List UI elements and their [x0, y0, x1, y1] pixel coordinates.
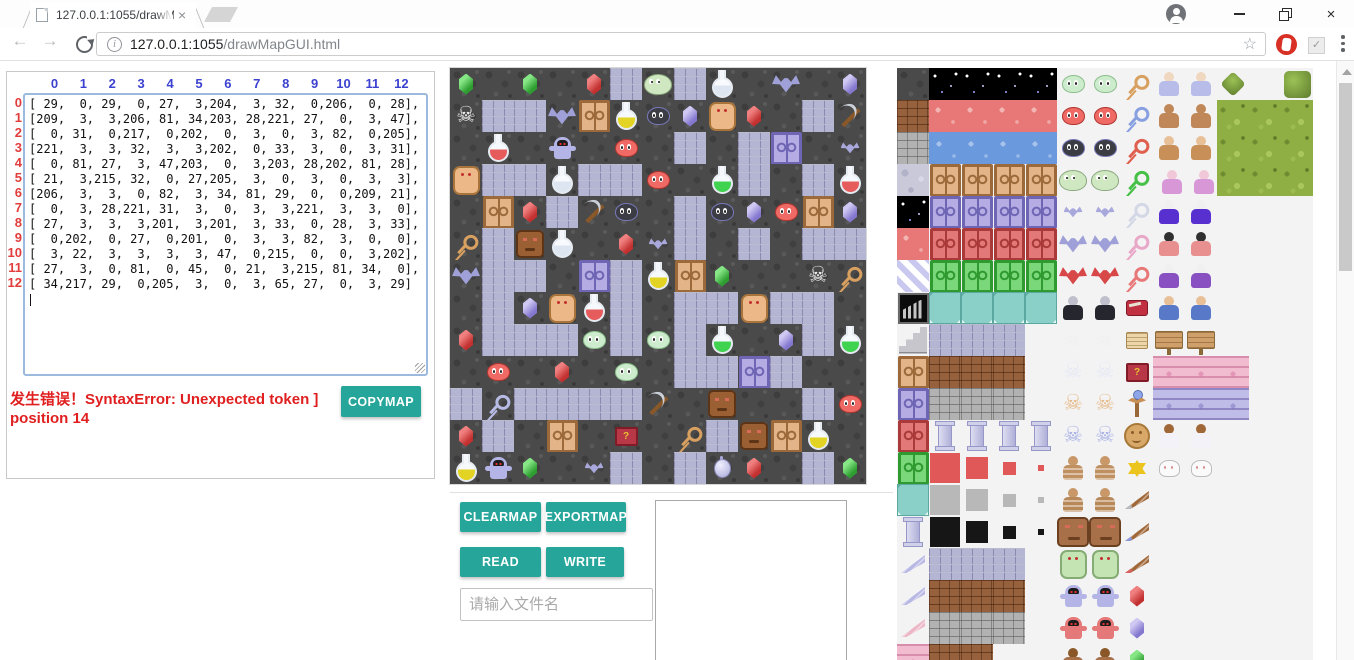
map-tile-dark-cobblestone[interactable]: [770, 100, 802, 132]
map-tile-silver-key[interactable]: [482, 388, 514, 420]
palette-tile-purple-door[interactable]: [993, 196, 1025, 228]
palette-tile-green-door[interactable]: [993, 260, 1025, 292]
textarea-resize-handle[interactable]: [415, 363, 425, 373]
close-window-button[interactable]: ×: [1308, 0, 1354, 28]
map-tile-tan-door[interactable]: [482, 196, 514, 228]
palette-tile-empty[interactable]: [1217, 260, 1249, 292]
palette-tile-empty[interactable]: [1281, 516, 1313, 548]
map-tile-small-bat[interactable]: [834, 132, 866, 164]
clearmap-button[interactable]: CLEARMAP: [460, 502, 541, 532]
map-tile-dark-cobblestone[interactable]: [834, 420, 866, 452]
map-tile-lavender-brick[interactable]: [802, 100, 834, 132]
palette-tile-empty[interactable]: [1153, 548, 1185, 580]
palette-tile-tree-foliage[interactable]: [1281, 132, 1313, 164]
palette-tile-red-gem[interactable]: [1121, 580, 1153, 612]
palette-tile-empty[interactable]: [1281, 580, 1313, 612]
palette-tile-green-golem[interactable]: [1089, 548, 1121, 580]
palette-tile-black-slime[interactable]: [1057, 132, 1089, 164]
map-tile-purple-door[interactable]: [738, 356, 770, 388]
map-tile-lavender-brick[interactable]: [834, 228, 866, 260]
palette-tile-pink-wall[interactable]: [1185, 356, 1217, 388]
map-tile-red-gem[interactable]: [450, 324, 482, 356]
palette-tile-priest[interactable]: [1185, 260, 1217, 292]
map-tile-dark-cobblestone[interactable]: [450, 196, 482, 228]
map-tile-dark-cobblestone[interactable]: [738, 324, 770, 356]
palette-tile-grey-brick[interactable]: [961, 612, 993, 644]
palette-tile-empty[interactable]: [1281, 548, 1313, 580]
palette-tile-empty[interactable]: [1281, 452, 1313, 484]
map-tile-dark-cobblestone[interactable]: [738, 260, 770, 292]
map-tile-dark-cobblestone[interactable]: [770, 388, 802, 420]
palette-tile-empty[interactable]: [1217, 644, 1249, 660]
map-tile-green-gem[interactable]: [834, 452, 866, 484]
palette-tile-tree-foliage[interactable]: [1249, 100, 1281, 132]
palette-tile-teal-lattice[interactable]: [929, 292, 961, 324]
map-tile-lavender-brick[interactable]: [610, 452, 642, 484]
palette-tile-salmon-ground[interactable]: [1025, 100, 1057, 132]
map-tile-dark-cobblestone[interactable]: [514, 356, 546, 388]
map-tile-dark-cobblestone[interactable]: [450, 356, 482, 388]
palette-tile-old-man[interactable]: [1153, 68, 1185, 100]
map-tile-lavender-brick[interactable]: [482, 260, 514, 292]
map-tile-lavender-brick[interactable]: [674, 292, 706, 324]
map-tile-lavender-brick[interactable]: [802, 228, 834, 260]
palette-tile-empty[interactable]: [1249, 68, 1281, 100]
map-tile-lavender-brick[interactable]: [546, 324, 578, 356]
palette-tile-pink-ornate-key[interactable]: [1121, 228, 1153, 260]
profile-avatar-icon[interactable]: [1166, 4, 1186, 24]
palette-tile-black-square-8[interactable]: [1025, 516, 1057, 548]
map-tile-tan-door[interactable]: [674, 260, 706, 292]
map-tile-dark-cobblestone[interactable]: [482, 68, 514, 100]
map-tile-red-gem[interactable]: [578, 68, 610, 100]
palette-tile-dark-cobblestone[interactable]: [897, 68, 929, 100]
palette-tile-empty[interactable]: [1249, 644, 1281, 660]
palette-tile-empty[interactable]: [1185, 644, 1217, 660]
palette-tile-water[interactable]: [993, 132, 1025, 164]
palette-tile-tree-foliage[interactable]: [1217, 132, 1249, 164]
palette-tile-pink-wall[interactable]: [1153, 356, 1185, 388]
map-tile-yellow-potion[interactable]: [610, 100, 642, 132]
palette-tile-vampire[interactable]: [1089, 292, 1121, 324]
palette-tile-empty[interactable]: [1025, 612, 1057, 644]
palette-tile-white-puff[interactable]: [1185, 452, 1217, 484]
map-tile-lavender-brick[interactable]: [482, 324, 514, 356]
palette-tile-tan-door[interactable]: [929, 164, 961, 196]
palette-tile-empty[interactable]: [1217, 516, 1249, 548]
palette-tile-empty[interactable]: [1217, 612, 1249, 644]
map-tile-big-bat[interactable]: [546, 100, 578, 132]
map-tile-lavender-brick[interactable]: [546, 196, 578, 228]
palette-tile-red-bat[interactable]: [1057, 260, 1089, 292]
palette-tile-teal-lattice[interactable]: [897, 484, 929, 516]
palette-tile-red-door[interactable]: [961, 228, 993, 260]
palette-tile-pillar[interactable]: [929, 420, 961, 452]
palette-tile-stairs-icon[interactable]: [897, 292, 929, 324]
palette-tile-brown-brick[interactable]: [929, 644, 961, 660]
map-tile-golem[interactable]: [738, 292, 770, 324]
map-tile-dark-cobblestone[interactable]: [642, 452, 674, 484]
palette-tile-spell-book[interactable]: [1121, 356, 1153, 388]
palette-tile-empty[interactable]: [1281, 228, 1313, 260]
palette-tile-salmon-ground[interactable]: [929, 100, 961, 132]
map-tile-skeleton[interactable]: [802, 260, 834, 292]
palette-tile-large-stone-face[interactable]: [1089, 516, 1121, 548]
palette-tile-empty[interactable]: [1281, 196, 1313, 228]
palette-tile-wooden-sign[interactable]: [1185, 324, 1217, 356]
palette-tile-red-ghost[interactable]: [1057, 612, 1089, 644]
palette-tile-lavender-brick[interactable]: [961, 324, 993, 356]
minimize-button[interactable]: [1216, 0, 1262, 28]
palette-tile-fairy[interactable]: [1153, 164, 1185, 196]
map-tile-dark-cobblestone[interactable]: [578, 356, 610, 388]
map-tile-lavender-brick[interactable]: [482, 228, 514, 260]
palette-tile-hero-boy[interactable]: [1185, 292, 1217, 324]
map-tile-yellow-potion[interactable]: [642, 260, 674, 292]
map-tile-tan-door[interactable]: [546, 420, 578, 452]
scrollbar-thumb[interactable]: [1339, 83, 1352, 271]
map-tile-purple-door[interactable]: [578, 260, 610, 292]
palette-tile-red-ghost[interactable]: [1089, 612, 1121, 644]
forward-button[interactable]: →: [38, 31, 62, 51]
palette-tile-dwarf-face[interactable]: [1185, 100, 1217, 132]
palette-tile-empty[interactable]: [1249, 452, 1281, 484]
palette-tile-salmon-ground[interactable]: [993, 100, 1025, 132]
palette-tile-empty[interactable]: [1217, 420, 1249, 452]
map-tile-dark-cobblestone[interactable]: [674, 388, 706, 420]
map-tile-black-slime[interactable]: [642, 100, 674, 132]
palette-tile-purple-door[interactable]: [961, 196, 993, 228]
map-tile-spell-book[interactable]: [610, 420, 642, 452]
palette-tile-mummy-with-shield[interactable]: [1089, 484, 1121, 516]
map-tile-lavender-brick[interactable]: [610, 324, 642, 356]
palette-tile-tree-foliage[interactable]: [1281, 100, 1313, 132]
palette-tile-blue-key[interactable]: [1121, 100, 1153, 132]
map-tile-dark-cobblestone[interactable]: [642, 356, 674, 388]
palette-tile-red-square-16[interactable]: [993, 452, 1025, 484]
palette-tile-brown-brick[interactable]: [993, 580, 1025, 612]
map-tile-tan-door[interactable]: [770, 420, 802, 452]
palette-tile-empty[interactable]: [1153, 484, 1185, 516]
map-tile-green-gem[interactable]: [514, 68, 546, 100]
palette-tile-red-door[interactable]: [897, 420, 929, 452]
map-tile-lavender-brick[interactable]: [802, 324, 834, 356]
map-tile-small-bat[interactable]: [642, 228, 674, 260]
map-tile-dark-cobblestone[interactable]: [578, 420, 610, 452]
palette-tile-red-square-32[interactable]: [929, 452, 961, 484]
palette-tile-black-square-32[interactable]: [929, 516, 961, 548]
palette-tile-grey-brick[interactable]: [929, 612, 961, 644]
map-tile-pale-slime[interactable]: [642, 324, 674, 356]
map-tile-red-potion[interactable]: [834, 164, 866, 196]
map-tile-dark-cobblestone[interactable]: [770, 164, 802, 196]
palette-tile-grey-brick[interactable]: [897, 132, 929, 164]
map-tile-black-slime[interactable]: [706, 196, 738, 228]
map-tile-lavender-brick[interactable]: [802, 292, 834, 324]
palette-tile-red-ornate-key[interactable]: [1121, 260, 1153, 292]
palette-tile-pillar[interactable]: [897, 516, 929, 548]
palette-tile-tree-foliage[interactable]: [1217, 100, 1249, 132]
map-tile-dark-cobblestone[interactable]: [738, 388, 770, 420]
palette-tile-empty[interactable]: [1249, 516, 1281, 548]
map-tile-red-slime[interactable]: [642, 164, 674, 196]
palette-tile-tan-skeleton[interactable]: [1089, 388, 1121, 420]
map-tile-red-gem[interactable]: [738, 452, 770, 484]
palette-tile-empty[interactable]: [1249, 548, 1281, 580]
palette-tile-red-square-8[interactable]: [1025, 452, 1057, 484]
palette-tile-red-wing[interactable]: [1121, 548, 1153, 580]
palette-tile-purple-wizard[interactable]: [1185, 196, 1217, 228]
map-tile-clear-potion[interactable]: [546, 228, 578, 260]
palette-tile-tan-door[interactable]: [993, 164, 1025, 196]
palette-tile-empty[interactable]: [1025, 388, 1057, 420]
palette-tile-armored-skeleton[interactable]: [1089, 420, 1121, 452]
palette-tile-lavender-brick[interactable]: [929, 324, 961, 356]
palette-tile-empty[interactable]: [1153, 644, 1185, 660]
palette-tile-mummy[interactable]: [1089, 452, 1121, 484]
palette-tile-empty[interactable]: [1185, 484, 1217, 516]
palette-tile-empty[interactable]: [1025, 644, 1057, 660]
palette-tile-priest[interactable]: [1153, 260, 1185, 292]
map-tile-lavender-brick[interactable]: [674, 356, 706, 388]
palette-tile-water[interactable]: [929, 132, 961, 164]
map-tile-dark-cobblestone[interactable]: [802, 356, 834, 388]
palette-tile-empty[interactable]: [1249, 580, 1281, 612]
palette-tile-old-man[interactable]: [1185, 68, 1217, 100]
map-tile-dark-cobblestone[interactable]: [546, 452, 578, 484]
map-tile-red-potion[interactable]: [482, 132, 514, 164]
map-tile-lavender-brick[interactable]: [674, 324, 706, 356]
palette-tile-empty[interactable]: [1249, 612, 1281, 644]
palette-tile-empty[interactable]: [1153, 612, 1185, 644]
palette-tile-grey-brick[interactable]: [929, 388, 961, 420]
palette-tile-brown-brick[interactable]: [929, 580, 961, 612]
palette-tile-grey-square-32[interactable]: [929, 484, 961, 516]
map-tile-lavender-brick[interactable]: [482, 420, 514, 452]
palette-tile-diagonal-stripes[interactable]: [897, 260, 929, 292]
palette-tile-green-door[interactable]: [961, 260, 993, 292]
map-tile-lavender-brick[interactable]: [546, 388, 578, 420]
palette-tile-empty[interactable]: [1249, 196, 1281, 228]
map-tile-gold-key[interactable]: [674, 420, 706, 452]
map-tile-lavender-brick[interactable]: [514, 260, 546, 292]
palette-tile-black-slime[interactable]: [1089, 132, 1121, 164]
map-tile-purple-gem[interactable]: [738, 196, 770, 228]
palette-tile-tree-foliage[interactable]: [1217, 164, 1249, 196]
palette-tile-pink-wall[interactable]: [1217, 356, 1249, 388]
palette-tile-skeleton[interactable]: [1057, 324, 1089, 356]
map-tile-lavender-brick[interactable]: [674, 68, 706, 100]
map-tile-dark-cobblestone[interactable]: [514, 420, 546, 452]
palette-tile-black-square-24[interactable]: [961, 516, 993, 548]
palette-tile-skeleton[interactable]: [1089, 324, 1121, 356]
map-tile-lavender-brick[interactable]: [610, 164, 642, 196]
palette-tile-red-door[interactable]: [993, 228, 1025, 260]
palette-tile-empty[interactable]: [1281, 612, 1313, 644]
map-tile-dark-cobblestone[interactable]: [514, 132, 546, 164]
palette-tile-empty[interactable]: [1281, 356, 1313, 388]
map-tile-lavender-brick[interactable]: [514, 164, 546, 196]
palette-tile-green-door[interactable]: [929, 260, 961, 292]
palette-tile-red-slime[interactable]: [1057, 100, 1089, 132]
map-tile-red-gem[interactable]: [514, 196, 546, 228]
browser-tab[interactable]: 127.0.0.1:1055/drawMa ×: [30, 2, 196, 28]
palette-tile-tan-scroll[interactable]: [1121, 324, 1153, 356]
map-tile-purple-gem[interactable]: [514, 292, 546, 324]
map-tile-red-potion[interactable]: [578, 292, 610, 324]
palette-tile-green-door[interactable]: [1025, 260, 1057, 292]
palette-tile-brown-brick[interactable]: [929, 356, 961, 388]
palette-tile-empty[interactable]: [1281, 420, 1313, 452]
palette-tile-brawler[interactable]: [1153, 132, 1185, 164]
palette-tile-pillar[interactable]: [993, 420, 1025, 452]
palette-tile-tan-door[interactable]: [897, 356, 929, 388]
palette-tile-red-door[interactable]: [929, 228, 961, 260]
palette-tile-empty[interactable]: [1185, 548, 1217, 580]
map-tile-lavender-brick[interactable]: [610, 388, 642, 420]
palette-tile-empty[interactable]: [993, 644, 1025, 660]
palette-tile-small-bat[interactable]: [1089, 196, 1121, 228]
page-scrollbar[interactable]: [1336, 61, 1354, 660]
address-bar[interactable]: i 127.0.0.1:1055/drawMapGUI.html ☆: [96, 32, 1266, 56]
palette-tile-empty[interactable]: [1217, 548, 1249, 580]
palette-tile-red-door[interactable]: [1025, 228, 1057, 260]
palette-tile-teal-lattice[interactable]: [1025, 292, 1057, 324]
map-tile-lavender-brick[interactable]: [578, 388, 610, 420]
palette-tile-big-bat[interactable]: [1057, 228, 1089, 260]
palette-tile-grey-square-16[interactable]: [993, 484, 1025, 516]
map-tile-lavender-brick[interactable]: [674, 196, 706, 228]
palette-tile-gold-star[interactable]: [1121, 452, 1153, 484]
palette-tile-grey-square-8[interactable]: [1025, 484, 1057, 516]
copymap-button[interactable]: COPYMAP: [341, 386, 421, 417]
palette-tile-armored-skeleton[interactable]: [1057, 420, 1089, 452]
palette-tile-skeleton-shield[interactable]: [1057, 356, 1089, 388]
map-tile-lavender-brick[interactable]: [802, 452, 834, 484]
palette-tile-empty[interactable]: [1249, 324, 1281, 356]
palette-tile-fairy[interactable]: [1185, 164, 1217, 196]
map-tile-clear-potion[interactable]: [706, 68, 738, 100]
palette-tile-vampire[interactable]: [1057, 292, 1089, 324]
map-tile-tan-door[interactable]: [802, 196, 834, 228]
palette-tile-purple-door[interactable]: [1025, 196, 1057, 228]
map-tile-yellow-potion[interactable]: [450, 452, 482, 484]
browser-menu-icon[interactable]: [1341, 35, 1345, 55]
palette-tile-blue-wing[interactable]: [1121, 516, 1153, 548]
palette-tile-starfield[interactable]: [1025, 68, 1057, 100]
map-tile-green-gem[interactable]: [450, 68, 482, 100]
palette-tile-empty[interactable]: [1153, 580, 1185, 612]
map-tile-lavender-brick[interactable]: [482, 164, 514, 196]
palette-tile-lavender-wall[interactable]: [1153, 388, 1185, 420]
palette-tile-stone-rubble[interactable]: [897, 164, 929, 196]
palette-tile-red-scroll[interactable]: [1121, 292, 1153, 324]
map-tile-dark-cobblestone[interactable]: [738, 68, 770, 100]
palette-tile-starfield[interactable]: [929, 68, 961, 100]
map-tile-green-potion[interactable]: [706, 164, 738, 196]
palette-tile-water[interactable]: [961, 132, 993, 164]
map-tile-golem[interactable]: [546, 292, 578, 324]
palette-tile-pale-slime[interactable]: [1057, 68, 1089, 100]
map-tile-clear-potion[interactable]: [546, 164, 578, 196]
palette-tile-tree-foliage[interactable]: [1249, 164, 1281, 196]
tile-palette[interactable]: [897, 68, 1313, 660]
map-tile-big-bat[interactable]: [770, 68, 802, 100]
palette-tile-empty[interactable]: [1185, 612, 1217, 644]
palette-tile-empty[interactable]: [1025, 548, 1057, 580]
map-tile-red-slime[interactable]: [770, 196, 802, 228]
palette-tile-purple-wizard[interactable]: [1153, 196, 1185, 228]
palette-tile-wooden-sign[interactable]: [1153, 324, 1185, 356]
palette-tile-empty[interactable]: [1153, 516, 1185, 548]
palette-tile-starfield[interactable]: [897, 196, 929, 228]
map-tile-lavender-brick[interactable]: [482, 292, 514, 324]
palette-tile-empty[interactable]: [1217, 228, 1249, 260]
palette-tile-hero-boy[interactable]: [1153, 292, 1185, 324]
palette-tile-lavender-wing[interactable]: [897, 580, 929, 612]
restore-button[interactable]: [1262, 0, 1308, 28]
palette-tile-grey-brick[interactable]: [993, 388, 1025, 420]
palette-tile-salmon-ground[interactable]: [897, 228, 929, 260]
palette-tile-empty[interactable]: [1185, 516, 1217, 548]
map-tile-dark-cobblestone[interactable]: [834, 292, 866, 324]
palette-tile-lavender-wall[interactable]: [1217, 388, 1249, 420]
palette-tile-empty[interactable]: [1025, 324, 1057, 356]
palette-tile-red-key[interactable]: [1121, 132, 1153, 164]
palette-tile-empty[interactable]: [1217, 452, 1249, 484]
palette-tile-brawler[interactable]: [1185, 132, 1217, 164]
map-tile-lavender-brick[interactable]: [674, 228, 706, 260]
map-tile-dark-cobblestone[interactable]: [450, 132, 482, 164]
palette-tile-teal-lattice[interactable]: [993, 292, 1025, 324]
palette-tile-purple-door[interactable]: [929, 196, 961, 228]
map-tile-red-gem[interactable]: [738, 100, 770, 132]
map-tile-dark-cobblestone[interactable]: [546, 68, 578, 100]
map-tile-lavender-brick[interactable]: [450, 388, 482, 420]
palette-tile-starfield[interactable]: [993, 68, 1025, 100]
palette-tile-black-square-16[interactable]: [993, 516, 1025, 548]
map-tile-golem[interactable]: [706, 100, 738, 132]
palette-tile-red-square-24[interactable]: [961, 452, 993, 484]
palette-tile-empty[interactable]: [1281, 292, 1313, 324]
palette-tile-empty[interactable]: [1249, 388, 1281, 420]
palette-tile-scepter[interactable]: [1121, 388, 1153, 420]
palette-tile-mummy[interactable]: [1057, 452, 1089, 484]
palette-tile-tan-door[interactable]: [961, 164, 993, 196]
palette-tile-skeleton-shield[interactable]: [1089, 356, 1121, 388]
palette-tile-lavender-brick[interactable]: [993, 548, 1025, 580]
palette-tile-green-key[interactable]: [1121, 164, 1153, 196]
map-tile-golem[interactable]: [450, 164, 482, 196]
palette-tile-pink-wing[interactable]: [897, 612, 929, 644]
palette-tile-tan-skeleton[interactable]: [1057, 388, 1089, 420]
palette-tile-purple-gem[interactable]: [1121, 612, 1153, 644]
map-tile-lavender-brick[interactable]: [770, 356, 802, 388]
map-tile-green-gem[interactable]: [706, 260, 738, 292]
map-tile-green-potion[interactable]: [706, 324, 738, 356]
map-tile-dark-cobblestone[interactable]: [642, 132, 674, 164]
map-tile-dark-cobblestone[interactable]: [770, 452, 802, 484]
map-tile-dark-cobblestone[interactable]: [642, 292, 674, 324]
palette-tile-dwarf-face[interactable]: [1153, 100, 1185, 132]
map-tile-lavender-brick[interactable]: [770, 292, 802, 324]
palette-tile-empty[interactable]: [1249, 484, 1281, 516]
map-tile-pickaxe[interactable]: [834, 100, 866, 132]
new-tab-button[interactable]: [204, 7, 238, 22]
palette-tile-empty[interactable]: [1217, 196, 1249, 228]
palette-tile-teal-lattice[interactable]: [961, 292, 993, 324]
palette-tile-pillar[interactable]: [1025, 420, 1057, 452]
